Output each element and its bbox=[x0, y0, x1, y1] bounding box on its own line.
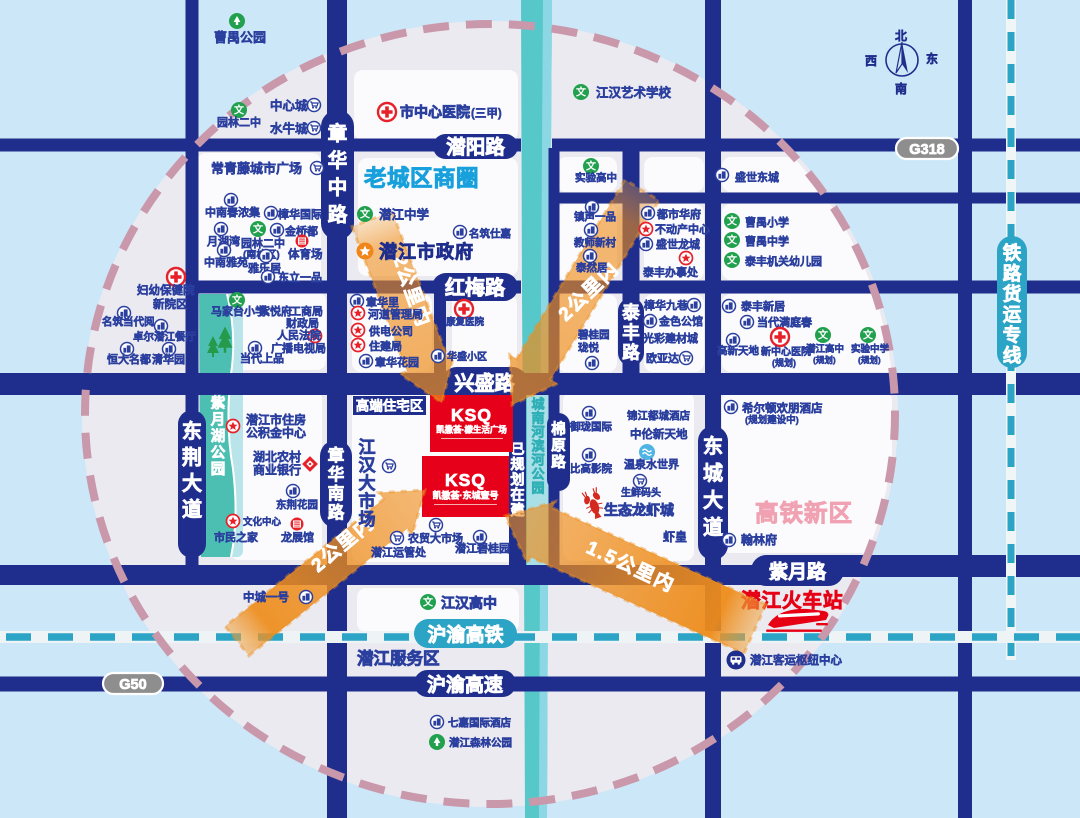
svg-text:潜江中学: 潜江中学 bbox=[379, 207, 430, 222]
svg-text:(规划): (规划) bbox=[772, 357, 796, 368]
svg-text:路: 路 bbox=[551, 453, 566, 471]
svg-text:镇声一品: 镇声一品 bbox=[574, 210, 616, 223]
svg-text:紫悦府: 紫悦府 bbox=[259, 304, 292, 318]
svg-text:城: 城 bbox=[531, 397, 544, 412]
svg-text:翰林府: 翰林府 bbox=[741, 532, 777, 547]
svg-text:南: 南 bbox=[328, 483, 345, 503]
svg-text:中南雅苑: 中南雅苑 bbox=[204, 255, 248, 269]
svg-text:当代上品: 当代上品 bbox=[240, 351, 284, 365]
svg-text:货: 货 bbox=[1003, 284, 1022, 305]
svg-text:章: 章 bbox=[328, 445, 345, 465]
svg-text:东: 东 bbox=[703, 434, 723, 458]
svg-text:生鲜码头: 生鲜码头 bbox=[621, 486, 661, 499]
svg-text:卓尔潜江餐厅: 卓尔潜江餐厅 bbox=[133, 330, 196, 343]
svg-text:章华花园: 章华花园 bbox=[375, 355, 419, 369]
svg-text:高铁新区: 高铁新区 bbox=[755, 499, 853, 526]
svg-text:专: 专 bbox=[1003, 325, 1022, 346]
svg-text:清华园: 清华园 bbox=[152, 352, 185, 366]
svg-text:樟华国际: 樟华国际 bbox=[277, 207, 322, 221]
svg-text:大: 大 bbox=[182, 472, 202, 495]
svg-text:希尔顿欢朋酒店: 希尔顿欢朋酒店 bbox=[741, 401, 823, 415]
svg-text:园: 园 bbox=[211, 461, 226, 478]
svg-text:曹禺小学: 曹禺小学 bbox=[745, 215, 789, 229]
svg-text:潜江高中: 潜江高中 bbox=[806, 343, 844, 355]
svg-text:当代满庭春: 当代满庭春 bbox=[757, 315, 813, 329]
svg-text:潜江市住房: 潜江市住房 bbox=[246, 412, 306, 427]
svg-text:河: 河 bbox=[531, 425, 544, 440]
svg-text:城: 城 bbox=[703, 461, 723, 485]
svg-text:泰然居: 泰然居 bbox=[575, 261, 608, 274]
svg-text:凯撒荟·檬生活广场: 凯撒荟·檬生活广场 bbox=[436, 425, 507, 435]
svg-text:金色公馆: 金色公馆 bbox=[658, 314, 703, 328]
svg-text:中城一号: 中城一号 bbox=[243, 590, 289, 604]
svg-text:工商局: 工商局 bbox=[290, 304, 323, 318]
svg-text:潜江市政府: 潜江市政府 bbox=[379, 241, 474, 262]
svg-text:曹禺中学: 曹禺中学 bbox=[745, 234, 789, 248]
svg-text:潜阳路: 潜阳路 bbox=[446, 136, 505, 159]
svg-text:东荆花园: 东荆花园 bbox=[276, 498, 318, 511]
svg-text:凯撒荟·东城壹号: 凯撒荟·东城壹号 bbox=[433, 490, 499, 501]
svg-text:路: 路 bbox=[328, 203, 348, 226]
svg-text:中南春浓集: 中南春浓集 bbox=[205, 205, 261, 219]
svg-text:G50: G50 bbox=[119, 677, 146, 693]
svg-text:月: 月 bbox=[210, 412, 226, 429]
svg-text:路: 路 bbox=[328, 502, 345, 522]
svg-text:湖: 湖 bbox=[211, 428, 226, 445]
svg-text:盛世东城: 盛世东城 bbox=[735, 170, 779, 184]
svg-text:新院区: 新院区 bbox=[153, 297, 188, 311]
svg-text:园: 园 bbox=[531, 481, 544, 496]
svg-text:丰: 丰 bbox=[622, 322, 640, 342]
svg-text:划: 划 bbox=[511, 471, 525, 487]
svg-text:潜江森林公园: 潜江森林公园 bbox=[449, 736, 512, 749]
svg-text:盛世龙城: 盛世龙城 bbox=[656, 237, 700, 251]
svg-text:华盛小区: 华盛小区 bbox=[447, 350, 487, 363]
svg-text:人民法院: 人民法院 bbox=[277, 328, 321, 342]
svg-text:铁: 铁 bbox=[1003, 243, 1022, 264]
svg-text:东: 东 bbox=[182, 419, 202, 443]
svg-text:供电公司: 供电公司 bbox=[368, 324, 413, 338]
svg-text:七嘉国际酒店: 七嘉国际酒店 bbox=[448, 716, 511, 729]
svg-text:沪渝高铁: 沪渝高铁 bbox=[427, 623, 503, 646]
svg-text:新中心医院: 新中心医院 bbox=[761, 345, 811, 358]
svg-text:大: 大 bbox=[359, 473, 376, 493]
svg-text:曹禺公园: 曹禺公园 bbox=[214, 30, 266, 45]
svg-text:中伦新天地: 中伦新天地 bbox=[630, 427, 688, 441]
svg-text:泰: 泰 bbox=[621, 302, 640, 322]
svg-text:兴盛路: 兴盛路 bbox=[455, 371, 516, 395]
svg-text:康复医院: 康复医院 bbox=[445, 316, 485, 328]
svg-text:运: 运 bbox=[1003, 304, 1022, 325]
svg-text:(规划建设中): (规划建设中) bbox=[745, 414, 799, 426]
svg-text:生态龙虾城: 生态龙虾城 bbox=[604, 502, 674, 518]
svg-text:高端住宅区: 高端住宅区 bbox=[356, 398, 424, 414]
svg-text:东立一品: 东立一品 bbox=[278, 270, 322, 284]
svg-text:园林二中: 园林二中 bbox=[241, 236, 285, 250]
svg-text:泰丰办事处: 泰丰办事处 bbox=[642, 265, 699, 279]
svg-text:华: 华 bbox=[328, 149, 348, 172]
svg-text:紫: 紫 bbox=[211, 395, 226, 412]
svg-text:荆: 荆 bbox=[182, 446, 202, 469]
svg-text:KSQ: KSQ bbox=[445, 470, 486, 490]
svg-text:华: 华 bbox=[328, 464, 345, 484]
svg-text:红梅路: 红梅路 bbox=[445, 276, 506, 300]
svg-text:公: 公 bbox=[531, 467, 544, 482]
svg-text:常青藤城市广场: 常青藤城市广场 bbox=[211, 161, 302, 176]
svg-text:(规划): (规划) bbox=[813, 355, 836, 365]
svg-text:市中心医院: 市中心医院 bbox=[400, 104, 470, 120]
svg-text:老城区商圈: 老城区商圈 bbox=[364, 165, 479, 191]
svg-text:河道管理局: 河道管理局 bbox=[368, 307, 423, 321]
svg-text:大: 大 bbox=[703, 489, 723, 512]
svg-text:北: 北 bbox=[895, 28, 907, 43]
svg-text:滨: 滨 bbox=[531, 439, 544, 454]
svg-text:比高影院: 比高影院 bbox=[570, 462, 612, 475]
svg-text:章华里: 章华里 bbox=[366, 295, 399, 309]
svg-text:道: 道 bbox=[703, 515, 723, 539]
svg-text:潜江客运枢纽中心: 潜江客运枢纽中心 bbox=[750, 653, 842, 667]
svg-text:财政局: 财政局 bbox=[285, 316, 319, 330]
svg-text:公: 公 bbox=[211, 445, 226, 462]
svg-text:规: 规 bbox=[511, 456, 525, 472]
svg-text:锦江都城酒店: 锦江都城酒店 bbox=[627, 409, 690, 422]
svg-text:市民之家: 市民之家 bbox=[214, 530, 259, 544]
svg-text:汉: 汉 bbox=[359, 456, 377, 475]
svg-text:市: 市 bbox=[359, 491, 376, 511]
svg-text:园林二中: 园林二中 bbox=[217, 115, 261, 129]
svg-text:都市华府: 都市华府 bbox=[656, 207, 701, 221]
svg-text:路: 路 bbox=[1003, 263, 1022, 284]
svg-text:南: 南 bbox=[895, 81, 907, 96]
svg-text:温泉水世界: 温泉水世界 bbox=[624, 457, 679, 471]
svg-text:江汉高中: 江汉高中 bbox=[441, 595, 497, 611]
svg-text:商业银行: 商业银行 bbox=[253, 462, 301, 477]
svg-text:公积金中心: 公积金中心 bbox=[246, 425, 306, 440]
svg-text:西: 西 bbox=[865, 54, 877, 68]
svg-text:御珑国际: 御珑国际 bbox=[569, 420, 612, 433]
svg-text:住建局: 住建局 bbox=[369, 339, 402, 353]
svg-text:马家台小学: 马家台小学 bbox=[211, 304, 266, 318]
svg-text:南: 南 bbox=[531, 411, 544, 426]
svg-text:体育场: 体育场 bbox=[288, 247, 323, 261]
svg-text:在: 在 bbox=[511, 487, 525, 503]
svg-text:高新天地: 高新天地 bbox=[717, 344, 759, 357]
svg-text:文化中心: 文化中心 bbox=[242, 516, 282, 528]
svg-text:(三甲): (三甲) bbox=[471, 107, 502, 120]
svg-text:教师新村: 教师新村 bbox=[573, 236, 616, 249]
svg-text:章: 章 bbox=[328, 122, 348, 145]
svg-text:实验高中: 实验高中 bbox=[575, 171, 617, 184]
svg-text:虾皇: 虾皇 bbox=[663, 529, 687, 544]
svg-text:名筑当代阅: 名筑当代阅 bbox=[102, 315, 155, 328]
svg-text:湖北农村: 湖北农村 bbox=[253, 449, 301, 464]
svg-text:KSQ: KSQ bbox=[451, 405, 492, 425]
svg-text:(规划): (规划) bbox=[858, 355, 881, 365]
svg-text:恒大名都: 恒大名都 bbox=[107, 352, 151, 366]
svg-text:欧亚达: 欧亚达 bbox=[646, 351, 679, 365]
svg-text:潜江碧桂园: 潜江碧桂园 bbox=[455, 541, 510, 555]
svg-text:樟华九巷: 樟华九巷 bbox=[643, 298, 689, 312]
svg-text:泰丰新居: 泰丰新居 bbox=[740, 299, 785, 313]
svg-text:河: 河 bbox=[531, 453, 544, 468]
svg-text:中心城: 中心城 bbox=[270, 98, 308, 113]
svg-text:泰丰机关幼儿园: 泰丰机关幼儿园 bbox=[744, 254, 822, 268]
svg-text:江: 江 bbox=[359, 438, 376, 457]
svg-text:棉: 棉 bbox=[551, 420, 566, 438]
svg-text:道: 道 bbox=[182, 497, 202, 521]
svg-text:场: 场 bbox=[359, 510, 376, 529]
svg-text:潜江运管处: 潜江运管处 bbox=[371, 545, 427, 559]
svg-text:碧桂园: 碧桂园 bbox=[577, 328, 610, 341]
svg-text:中: 中 bbox=[328, 176, 348, 199]
svg-text:G318: G318 bbox=[909, 142, 944, 158]
svg-text:名筑仕嘉: 名筑仕嘉 bbox=[469, 227, 511, 240]
svg-text:实验中学: 实验中学 bbox=[851, 343, 890, 355]
svg-text:原: 原 bbox=[551, 438, 566, 455]
svg-text:紫月路: 紫月路 bbox=[769, 560, 827, 583]
svg-text:路: 路 bbox=[622, 342, 640, 362]
svg-text:妇幼保健院: 妇幼保健院 bbox=[136, 283, 195, 297]
svg-text:珑悦: 珑悦 bbox=[578, 341, 599, 354]
svg-text:线: 线 bbox=[1003, 345, 1022, 366]
svg-text:不动产中心: 不动产中心 bbox=[655, 222, 710, 236]
svg-text:龙展馆: 龙展馆 bbox=[280, 530, 314, 544]
svg-text:沪渝高速: 沪渝高速 bbox=[427, 673, 503, 696]
svg-text:江汉艺术学校: 江汉艺术学校 bbox=[596, 85, 672, 100]
svg-text:东: 东 bbox=[926, 51, 938, 66]
svg-text:潜江服务区: 潜江服务区 bbox=[357, 648, 440, 668]
svg-text:水牛城: 水牛城 bbox=[270, 121, 308, 136]
svg-text:光彩建材城: 光彩建材城 bbox=[642, 331, 698, 345]
